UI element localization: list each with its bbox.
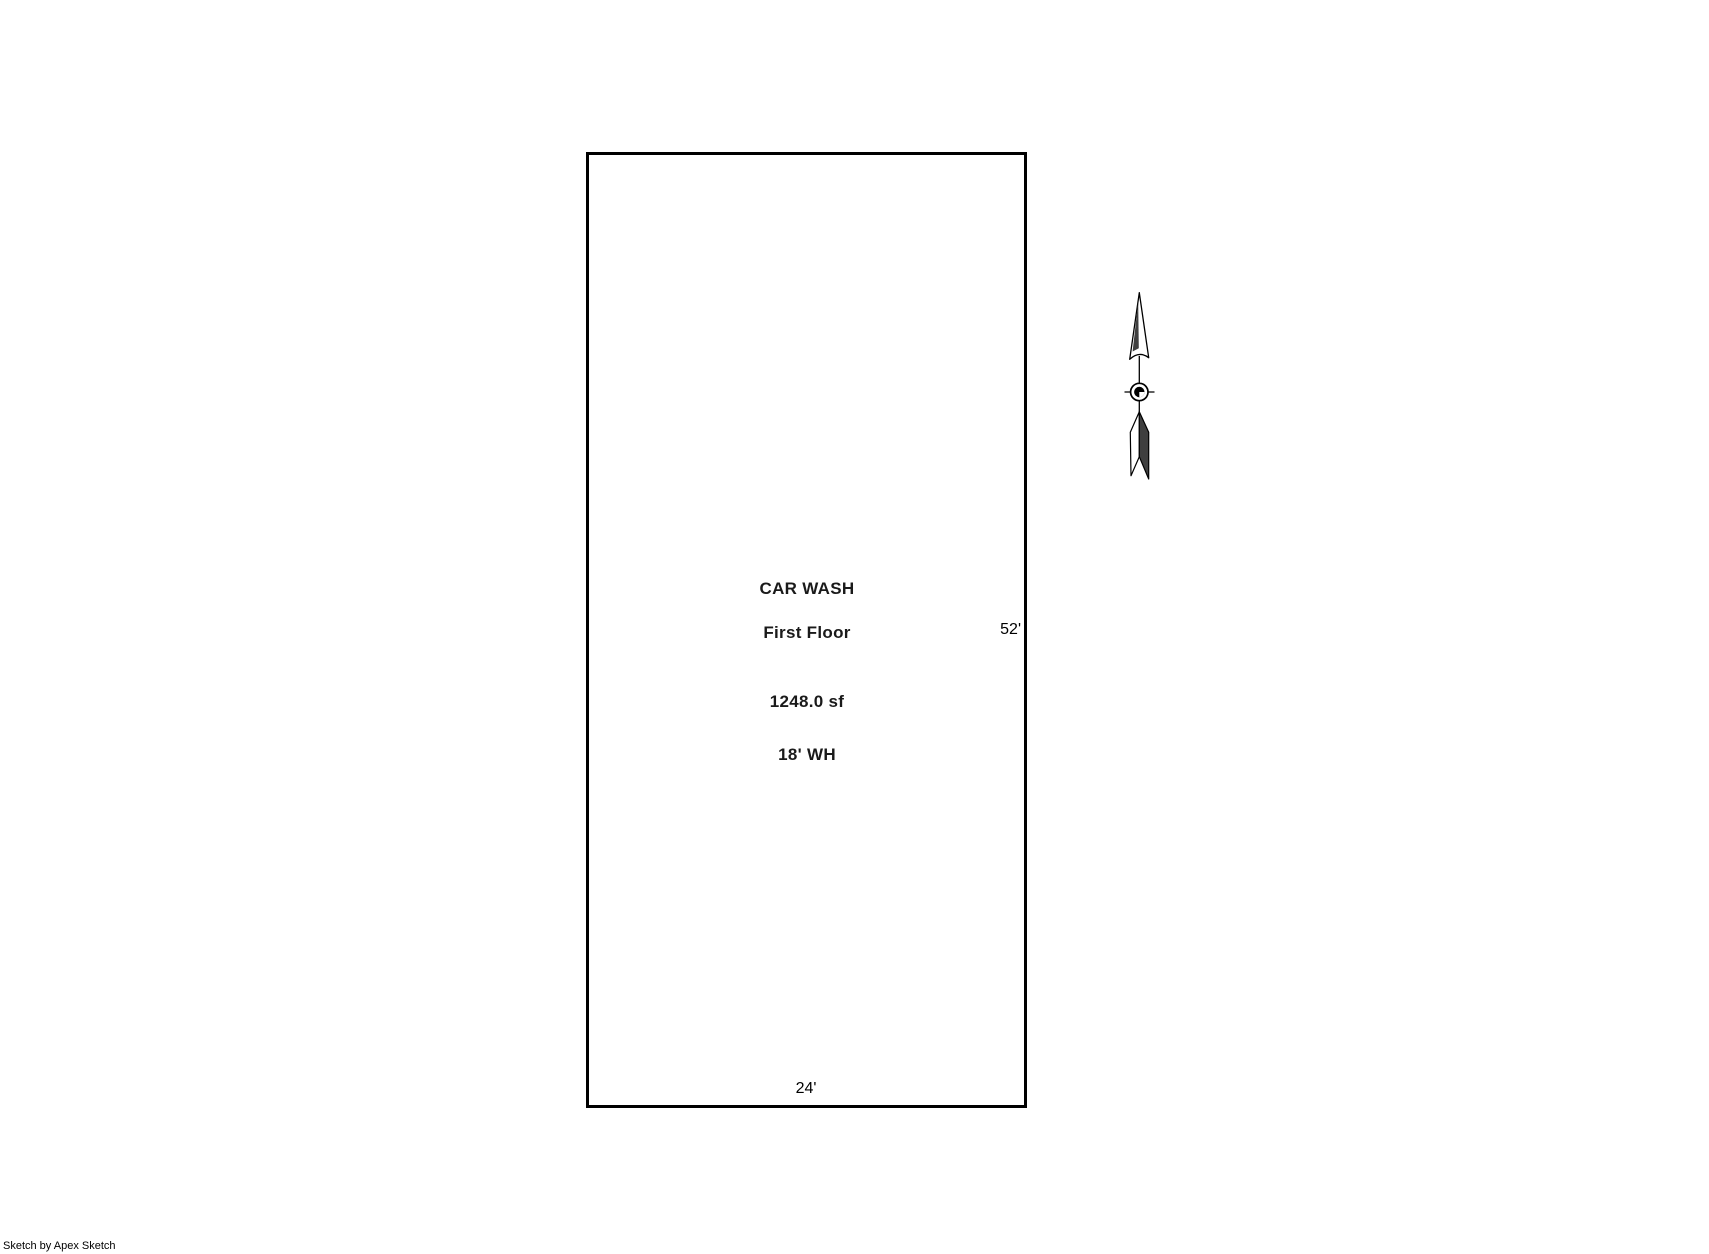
- north-arrow-fletching-left: [1130, 412, 1139, 476]
- square-footage-label: 1248.0 sf: [770, 693, 845, 710]
- sketch-page: CAR WASH First Floor 1248.0 sf 18' WH 52…: [0, 0, 1709, 1254]
- north-arrow-icon: [1100, 280, 1180, 490]
- north-arrow-head-shading: [1133, 302, 1139, 352]
- area-title-label: CAR WASH: [760, 580, 855, 597]
- north-arrow-head: [1130, 293, 1149, 360]
- credit-text: Sketch by Apex Sketch: [3, 1240, 116, 1252]
- floor-name-label: First Floor: [763, 624, 850, 641]
- dimension-right-wall: 52': [1000, 622, 1021, 638]
- north-arrow-fletching-right: [1139, 412, 1148, 479]
- wall-height-label: 18' WH: [778, 746, 836, 763]
- dimension-bottom-wall: 24': [796, 1081, 817, 1097]
